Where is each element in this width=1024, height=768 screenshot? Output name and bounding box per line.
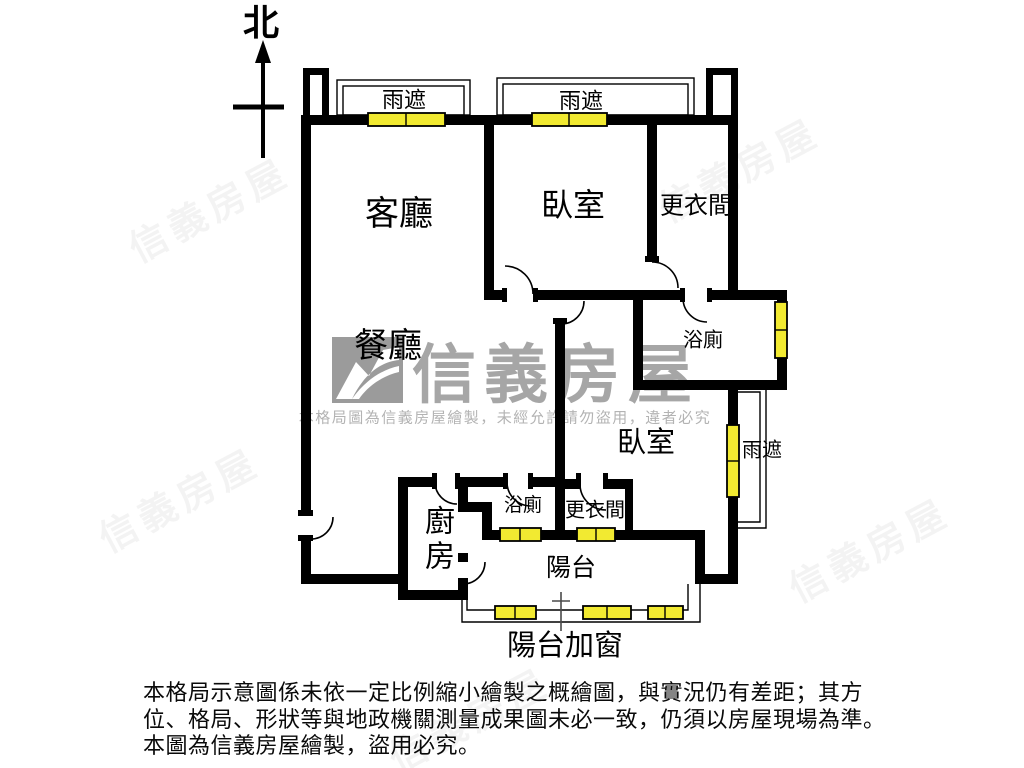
room-label-living-room: 客廳	[365, 197, 433, 233]
rain-shelter-label-top-left: 雨遮	[382, 88, 426, 111]
north-label: 北	[243, 5, 279, 43]
disclaimer-line-3: 本圖為信義房屋繪製，盜用必究。	[143, 733, 886, 760]
room-label-bedroom-2: 臥室	[617, 428, 675, 458]
bedroom-1-door-arc	[505, 266, 533, 294]
room-label-closet-2: 更衣間	[565, 501, 625, 522]
room-label-balcony: 陽台	[546, 556, 596, 582]
disclaimer-line-1: 本格局示意圖係未依一定比例縮小繪製之概繪圖，與實況仍有差距；其方	[143, 680, 886, 707]
balcony-added-window-label: 陽台加窗	[507, 631, 623, 661]
room-label-bedroom-1: 臥室	[541, 189, 605, 223]
room-label-closet-1: 更衣間	[660, 194, 732, 219]
disclaimer-line-2: 位、格局、形狀等與地政機關測量成果圖未必一致，仍須以房屋現場為準。	[143, 707, 886, 734]
disclaimer-text: 本格局示意圖係未依一定比例縮小繪製之概繪圖，與實況仍有差距；其方 位、格局、形狀…	[143, 680, 886, 760]
bathroom-1-door-arc	[683, 298, 707, 322]
pillar-cores	[310, 75, 731, 115]
north-arrow-icon	[233, 40, 284, 158]
rain-shelter-outlines	[337, 78, 766, 528]
room-label-dining-room: 餐廳	[354, 329, 422, 365]
kitchen-door-arc	[435, 482, 457, 504]
floor-plan-page: 信義房屋 信義房屋 信義房屋 信義房屋 信義房屋 信義房屋 本格局圖為信義房屋繪…	[0, 0, 1024, 768]
rain-shelter-label-top-right: 雨遮	[559, 89, 603, 112]
room-label-kitchen: 廚房	[424, 506, 457, 575]
entry-door-arc	[311, 517, 333, 539]
balcony-window-pointer	[552, 592, 570, 631]
room-label-bathroom-2: 浴廁	[504, 496, 542, 516]
closet-1-door-arc	[652, 262, 678, 288]
room-label-bathroom-1: 浴廁	[683, 331, 723, 352]
rain-shelter-label-right: 雨遮	[742, 441, 782, 462]
